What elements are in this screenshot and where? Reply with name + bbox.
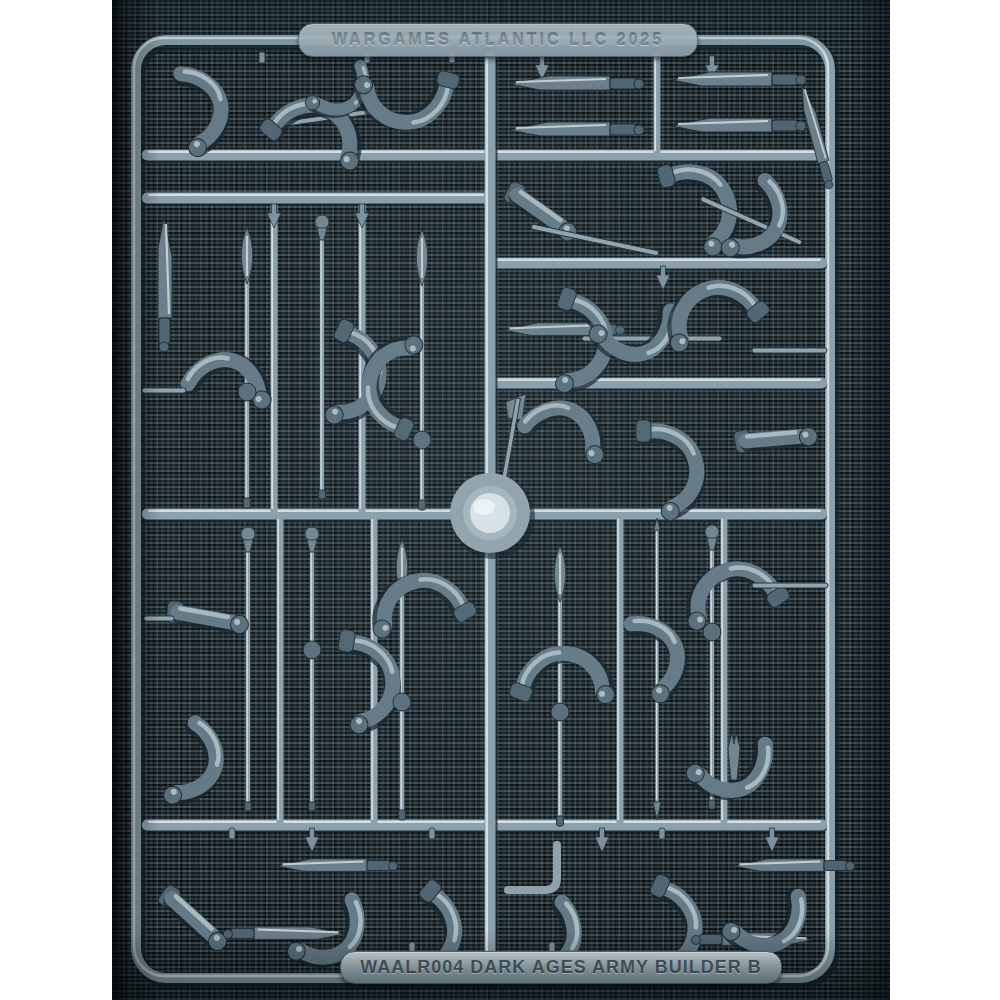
spear-parts-middle-left (142, 215, 462, 510)
sprue-graphic (112, 0, 890, 1000)
screenshot-canvas: WARGAMES ATLANTIC LLC 2025 WAALR004 DARK… (0, 0, 1000, 1000)
sprue-photo: WARGAMES ATLANTIC LLC 2025 WAALR004 DARK… (112, 0, 890, 1000)
sprue-top-label: WARGAMES ATLANTIC LLC 2025 (298, 23, 698, 57)
spear-parts-lower-left (141, 527, 484, 820)
spear-parts-lower-right (501, 518, 828, 826)
injection-hub (450, 473, 535, 559)
arm-parts-right-rows (499, 156, 827, 523)
sprue-bottom-label: WAALR004 DARK AGES ARMY BUILDER B (340, 951, 782, 984)
